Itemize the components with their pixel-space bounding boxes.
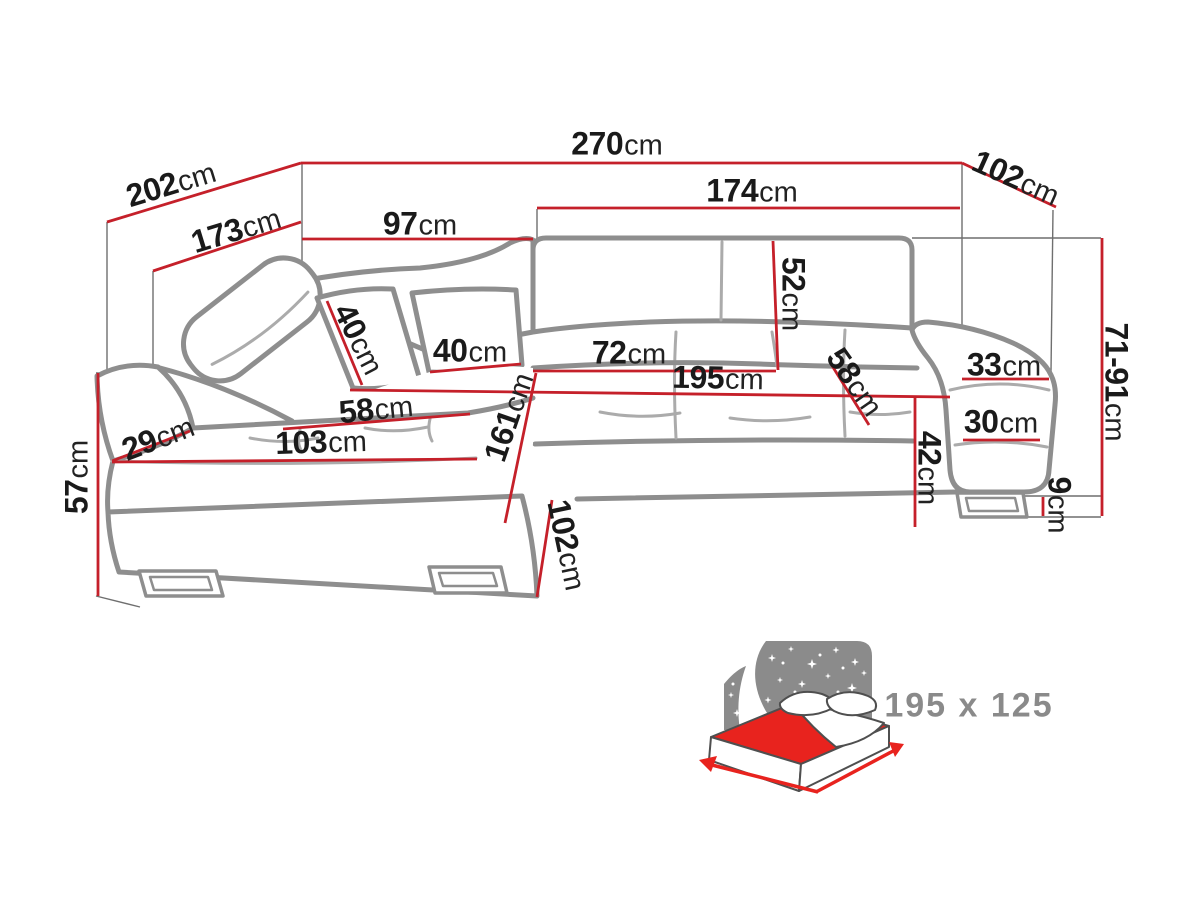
backrest-seam [721,242,722,320]
headrest [170,244,334,394]
diagram-canvas [0,0,1200,900]
sofa-sketch [96,238,1056,596]
pillow [412,289,522,372]
sleeping-area-size: 195 x 125 [884,687,1053,726]
dimension-line [537,500,552,597]
night-sky-shape [724,666,746,730]
sofa-bed-icon [699,641,904,792]
dimension-line [962,163,1056,207]
sofa-dimension-diagram: 270cm202cm102cm173cm97cm174cm52cm40cm40c… [0,0,1200,900]
dimension-line [107,163,301,222]
pillow [827,692,876,715]
